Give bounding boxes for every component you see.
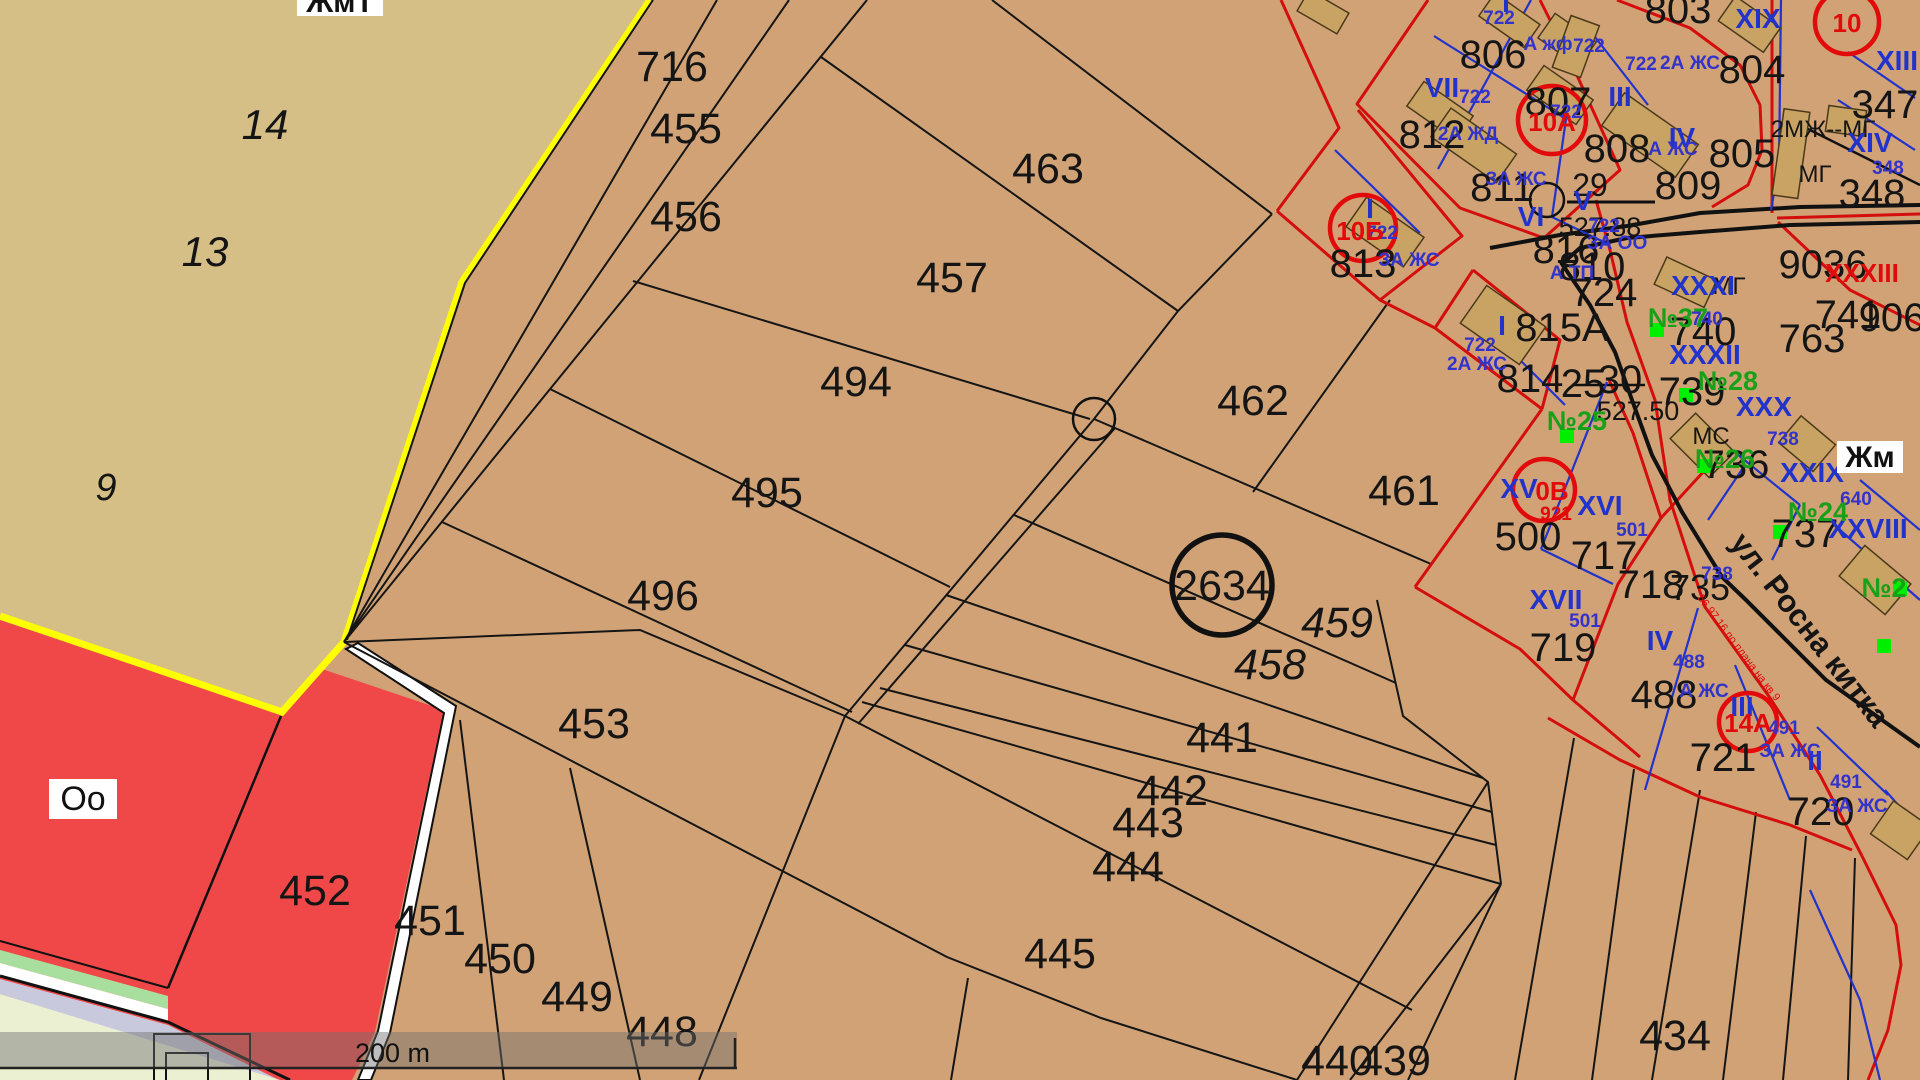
svg-text:IV: IV — [1647, 625, 1674, 656]
svg-text:ЖмТ: ЖмТ — [305, 0, 374, 19]
svg-text:9: 9 — [95, 467, 116, 509]
svg-text:А ТП: А ТП — [1550, 263, 1594, 284]
svg-text:№25: №25 — [1547, 406, 1607, 436]
svg-text:№2: №2 — [1861, 573, 1906, 603]
svg-text:488: 488 — [1673, 652, 1705, 673]
svg-text:496: 496 — [627, 572, 699, 620]
svg-text:719: 719 — [1530, 626, 1597, 670]
svg-text:№28: №28 — [1698, 366, 1758, 396]
svg-text:0В: 0В — [1535, 476, 1568, 506]
svg-text:439: 439 — [1359, 1037, 1431, 1080]
svg-text:450: 450 — [464, 935, 536, 983]
svg-text:722: 722 — [1483, 8, 1515, 29]
svg-text:722: 722 — [1625, 54, 1657, 75]
svg-text:462: 462 — [1217, 377, 1289, 425]
svg-text:XV: XV — [1500, 473, 1538, 504]
svg-text:ЗА ОО: ЗА ОО — [1587, 233, 1647, 254]
svg-text:348: 348 — [1872, 158, 1904, 179]
svg-text:2634: 2634 — [1174, 562, 1270, 610]
svg-text:501: 501 — [1569, 611, 1601, 632]
svg-text:13: 13 — [182, 228, 229, 275]
svg-text:451: 451 — [394, 897, 466, 945]
svg-text:721: 721 — [1690, 736, 1757, 780]
svg-text:494: 494 — [820, 358, 892, 406]
svg-text:№24: №24 — [1788, 497, 1848, 527]
svg-text:495: 495 — [731, 469, 803, 517]
svg-text:VI: VI — [1518, 201, 1544, 232]
svg-text:455: 455 — [650, 105, 722, 153]
svg-text:722: 722 — [1573, 36, 1605, 57]
svg-text:200 m: 200 m — [355, 1038, 430, 1068]
svg-text:449: 449 — [541, 973, 613, 1021]
svg-text:10А: 10А — [1528, 107, 1576, 137]
svg-text:I: I — [1498, 310, 1506, 341]
svg-text:722: 722 — [1464, 335, 1496, 356]
svg-text:XVI: XVI — [1577, 490, 1622, 521]
svg-text:XIX: XIX — [1735, 3, 1780, 34]
svg-text:805: 805 — [1709, 132, 1776, 176]
svg-text:803: 803 — [1645, 0, 1712, 32]
svg-text:463: 463 — [1012, 145, 1084, 193]
svg-text:МГ: МГ — [1799, 161, 1832, 188]
svg-text:№26: №26 — [1695, 444, 1755, 474]
svg-text:ЗА ЖС: ЗА ЖС — [1485, 169, 1547, 190]
svg-text:443: 443 — [1112, 799, 1184, 847]
svg-text:808: 808 — [1584, 127, 1651, 171]
svg-text:10Б: 10Б — [1336, 216, 1384, 246]
svg-text:XXXIII: XXXIII — [1825, 258, 1899, 288]
svg-text:ЗА ЖС: ЗА ЖС — [1378, 250, 1440, 271]
svg-text:XXIX: XXIX — [1780, 457, 1844, 488]
svg-text:А ЖС: А ЖС — [1679, 681, 1729, 702]
svg-text:2А ЖС: 2А ЖС — [1447, 354, 1507, 375]
svg-text:XIII: XIII — [1876, 45, 1918, 76]
svg-text:14А: 14А — [1724, 708, 1772, 738]
svg-text:445: 445 — [1024, 930, 1096, 978]
svg-text:XXXI: XXXI — [1671, 270, 1735, 301]
svg-text:501: 501 — [1616, 520, 1648, 541]
svg-text:456: 456 — [650, 193, 722, 241]
svg-text:453: 453 — [558, 700, 630, 748]
svg-text:722: 722 — [1459, 87, 1491, 108]
svg-text:Оо: Оо — [60, 780, 105, 818]
svg-text:491: 491 — [1830, 772, 1862, 793]
svg-text:458: 458 — [1234, 641, 1306, 689]
svg-text:716: 716 — [636, 43, 708, 91]
svg-text:461: 461 — [1368, 467, 1440, 515]
svg-text:2А ЖД: 2А ЖД — [1438, 124, 1499, 145]
svg-text:804: 804 — [1719, 48, 1786, 92]
svg-text:2А ЖС: 2А ЖС — [1660, 53, 1720, 74]
svg-text:14: 14 — [242, 101, 289, 148]
svg-text:921: 921 — [1540, 504, 1572, 525]
svg-text:Жм: Жм — [1844, 441, 1894, 474]
svg-text:III: III — [1608, 81, 1631, 112]
svg-text:491: 491 — [1768, 718, 1800, 739]
svg-text:XIV: XIV — [1847, 127, 1892, 158]
svg-text:№37: №37 — [1648, 303, 1708, 333]
svg-text:906: 906 — [1859, 296, 1920, 340]
svg-text:434: 434 — [1639, 1012, 1711, 1060]
svg-text:738: 738 — [1767, 429, 1799, 450]
svg-text:459: 459 — [1301, 599, 1373, 647]
svg-text:738: 738 — [1701, 564, 1733, 585]
svg-text:ЗА ЖС: ЗА ЖС — [1759, 741, 1821, 762]
svg-text:441: 441 — [1186, 714, 1258, 762]
svg-text:444: 444 — [1092, 843, 1164, 891]
svg-text:457: 457 — [916, 254, 988, 302]
svg-text:763: 763 — [1779, 317, 1846, 361]
svg-text:V: V — [1574, 185, 1593, 216]
svg-text:806: 806 — [1460, 33, 1527, 77]
svg-text:А жф: А жф — [1523, 34, 1572, 55]
svg-text:ЗА ЖС: ЗА ЖС — [1826, 796, 1888, 817]
svg-text:527.50: 527.50 — [1597, 396, 1680, 426]
svg-text:10: 10 — [1833, 8, 1862, 38]
svg-text:452: 452 — [279, 867, 351, 915]
svg-text:VII: VII — [1425, 72, 1459, 103]
svg-text:А ЖС: А ЖС — [1648, 139, 1698, 160]
